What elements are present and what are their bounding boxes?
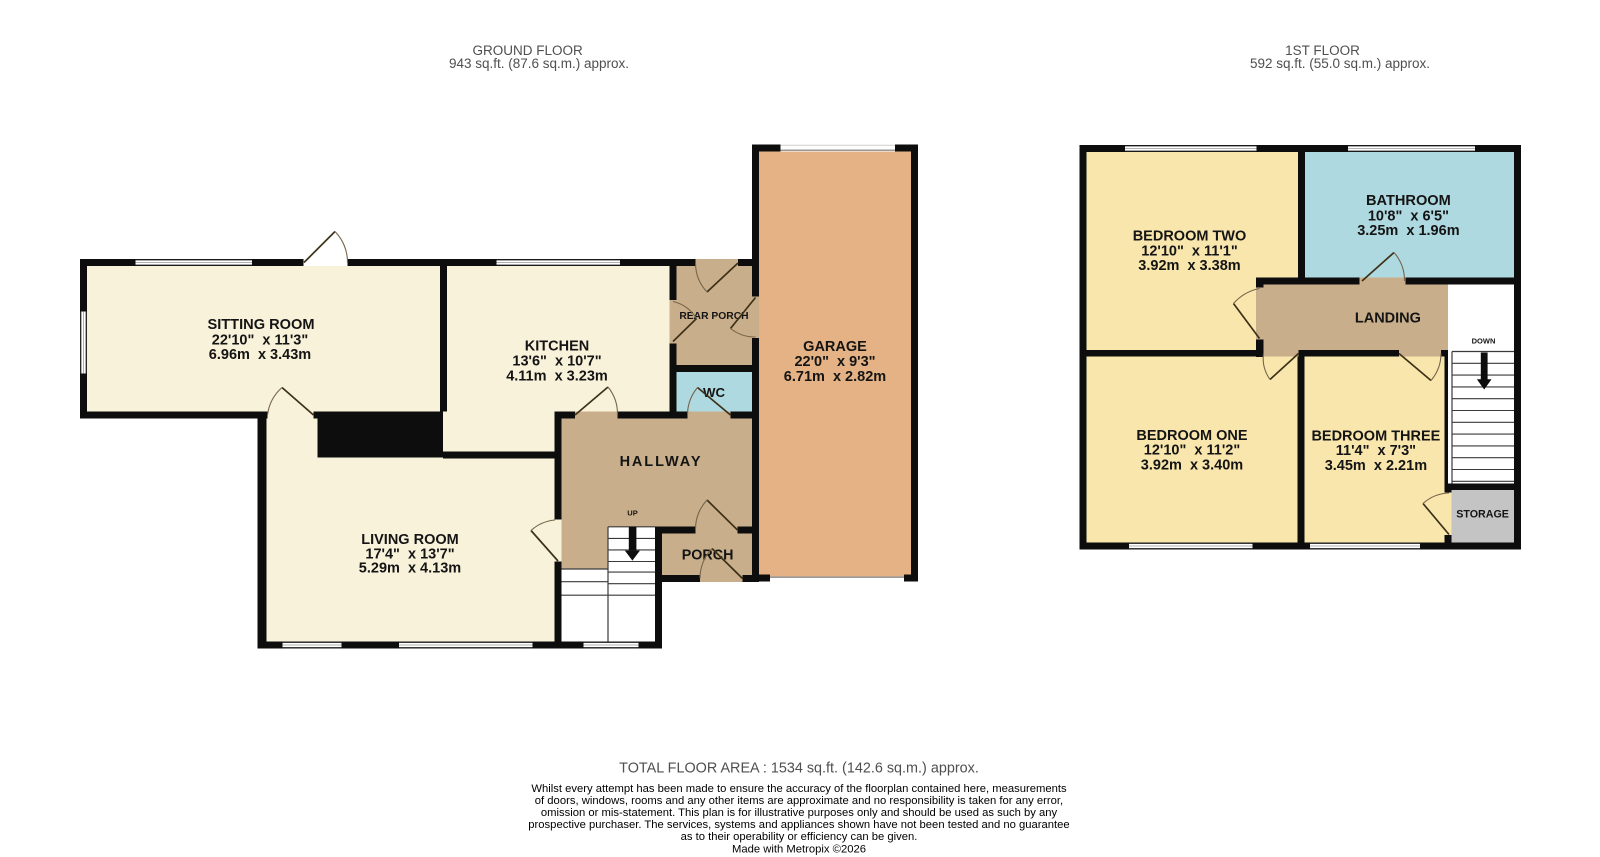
svg-text:3.92m x 3.40m: 3.92m x 3.40m [1141, 458, 1243, 474]
svg-text:6.71m x 2.82m: 6.71m x 2.82m [784, 369, 886, 385]
svg-text:TOTAL FLOOR AREA : 1534 sq.ft.: TOTAL FLOOR AREA : 1534 sq.ft. (142.6 sq… [619, 761, 979, 777]
svg-text:3.92m x 3.38m: 3.92m x 3.38m [1138, 258, 1240, 274]
svg-text:22'0" x 9'3": 22'0" x 9'3" [794, 354, 875, 370]
svg-text:3.45m x 2.21m: 3.45m x 2.21m [1325, 458, 1427, 474]
svg-text:as to their operability or eff: as to their operability or efficiency ca… [681, 831, 918, 843]
svg-text:SITTING ROOM: SITTING ROOM [207, 317, 314, 333]
svg-text:WC: WC [703, 385, 725, 400]
svg-text:6.96m x 3.43m: 6.96m x 3.43m [209, 347, 311, 363]
svg-text:KITCHEN: KITCHEN [525, 339, 589, 355]
svg-text:22'10" x 11'3": 22'10" x 11'3" [212, 333, 308, 349]
svg-text:943 sq.ft. (87.6 sq.m.) approx: 943 sq.ft. (87.6 sq.m.) approx. [449, 56, 629, 71]
svg-text:3.25m x 1.96m: 3.25m x 1.96m [1357, 223, 1459, 239]
svg-text:13'6" x 10'7": 13'6" x 10'7" [512, 354, 601, 370]
svg-text:STORAGE: STORAGE [1456, 508, 1509, 520]
svg-text:5.29m x 4.13m: 5.29m x 4.13m [359, 560, 461, 576]
svg-text:omission or mis-statement. Thi: omission or mis-statement. This plan is … [541, 807, 1058, 819]
svg-text:of doors, windows, rooms and a: of doors, windows, rooms and any other i… [535, 795, 1063, 807]
svg-text:12'10" x 11'2": 12'10" x 11'2" [1144, 443, 1240, 459]
svg-text:Made with Metropix ©2026: Made with Metropix ©2026 [732, 844, 866, 856]
svg-text:UP: UP [627, 509, 637, 518]
svg-text:LANDING: LANDING [1355, 311, 1421, 327]
svg-text:BATHROOM: BATHROOM [1366, 193, 1451, 209]
svg-text:4.11m x 3.23m: 4.11m x 3.23m [506, 368, 608, 384]
svg-text:BEDROOM TWO: BEDROOM TWO [1133, 228, 1247, 244]
svg-text:prospective purchaser. The ser: prospective purchaser. The services, sys… [528, 819, 1069, 831]
svg-text:BEDROOM ONE: BEDROOM ONE [1136, 428, 1248, 444]
svg-text:HALLWAY: HALLWAY [620, 454, 703, 470]
svg-text:Whilst every attempt has been: Whilst every attempt has been made to en… [531, 783, 1067, 795]
svg-text:11'4" x 7'3": 11'4" x 7'3" [1336, 443, 1416, 459]
svg-text:592 sq.ft. (55.0 sq.m.) approx: 592 sq.ft. (55.0 sq.m.) approx. [1250, 56, 1430, 71]
svg-text:GARAGE: GARAGE [803, 339, 867, 355]
svg-text:DOWN: DOWN [1472, 336, 1496, 345]
